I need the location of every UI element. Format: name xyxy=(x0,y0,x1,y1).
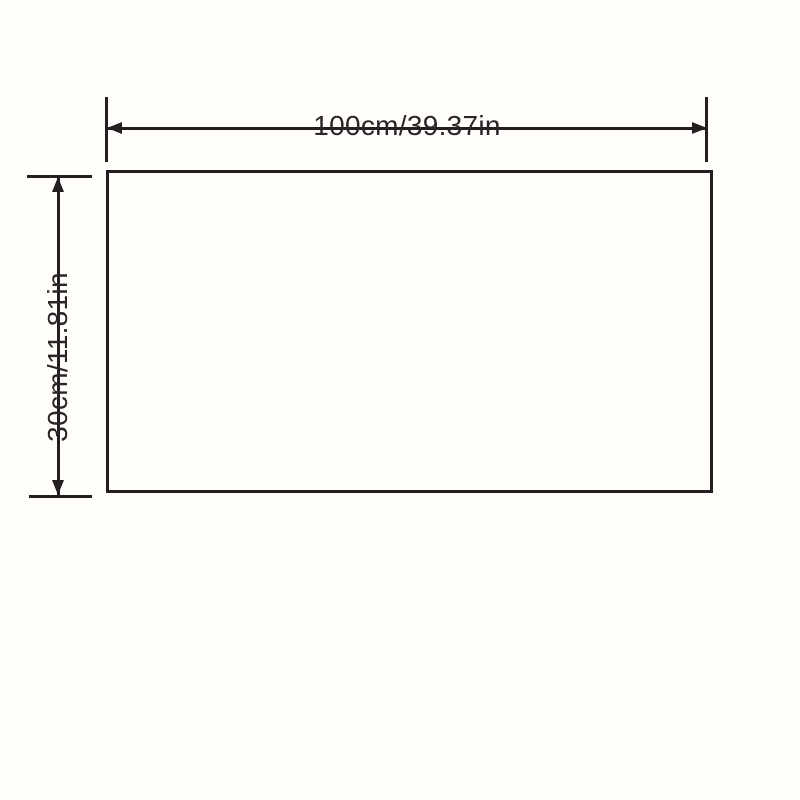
dimension-diagram: 100cm/39.37in 30cm/11.81in xyxy=(0,0,800,800)
product-outline-rectangle xyxy=(106,170,713,493)
width-dimension-label: 100cm/39.37in xyxy=(313,112,501,140)
height-extension-tick-bottom xyxy=(29,495,92,498)
arrow-up-icon xyxy=(52,177,64,192)
arrow-right-icon xyxy=(692,122,707,134)
arrow-left-icon xyxy=(107,122,122,134)
height-dimension-label: 30cm/11.81in xyxy=(44,272,72,442)
arrow-down-icon xyxy=(52,480,64,495)
